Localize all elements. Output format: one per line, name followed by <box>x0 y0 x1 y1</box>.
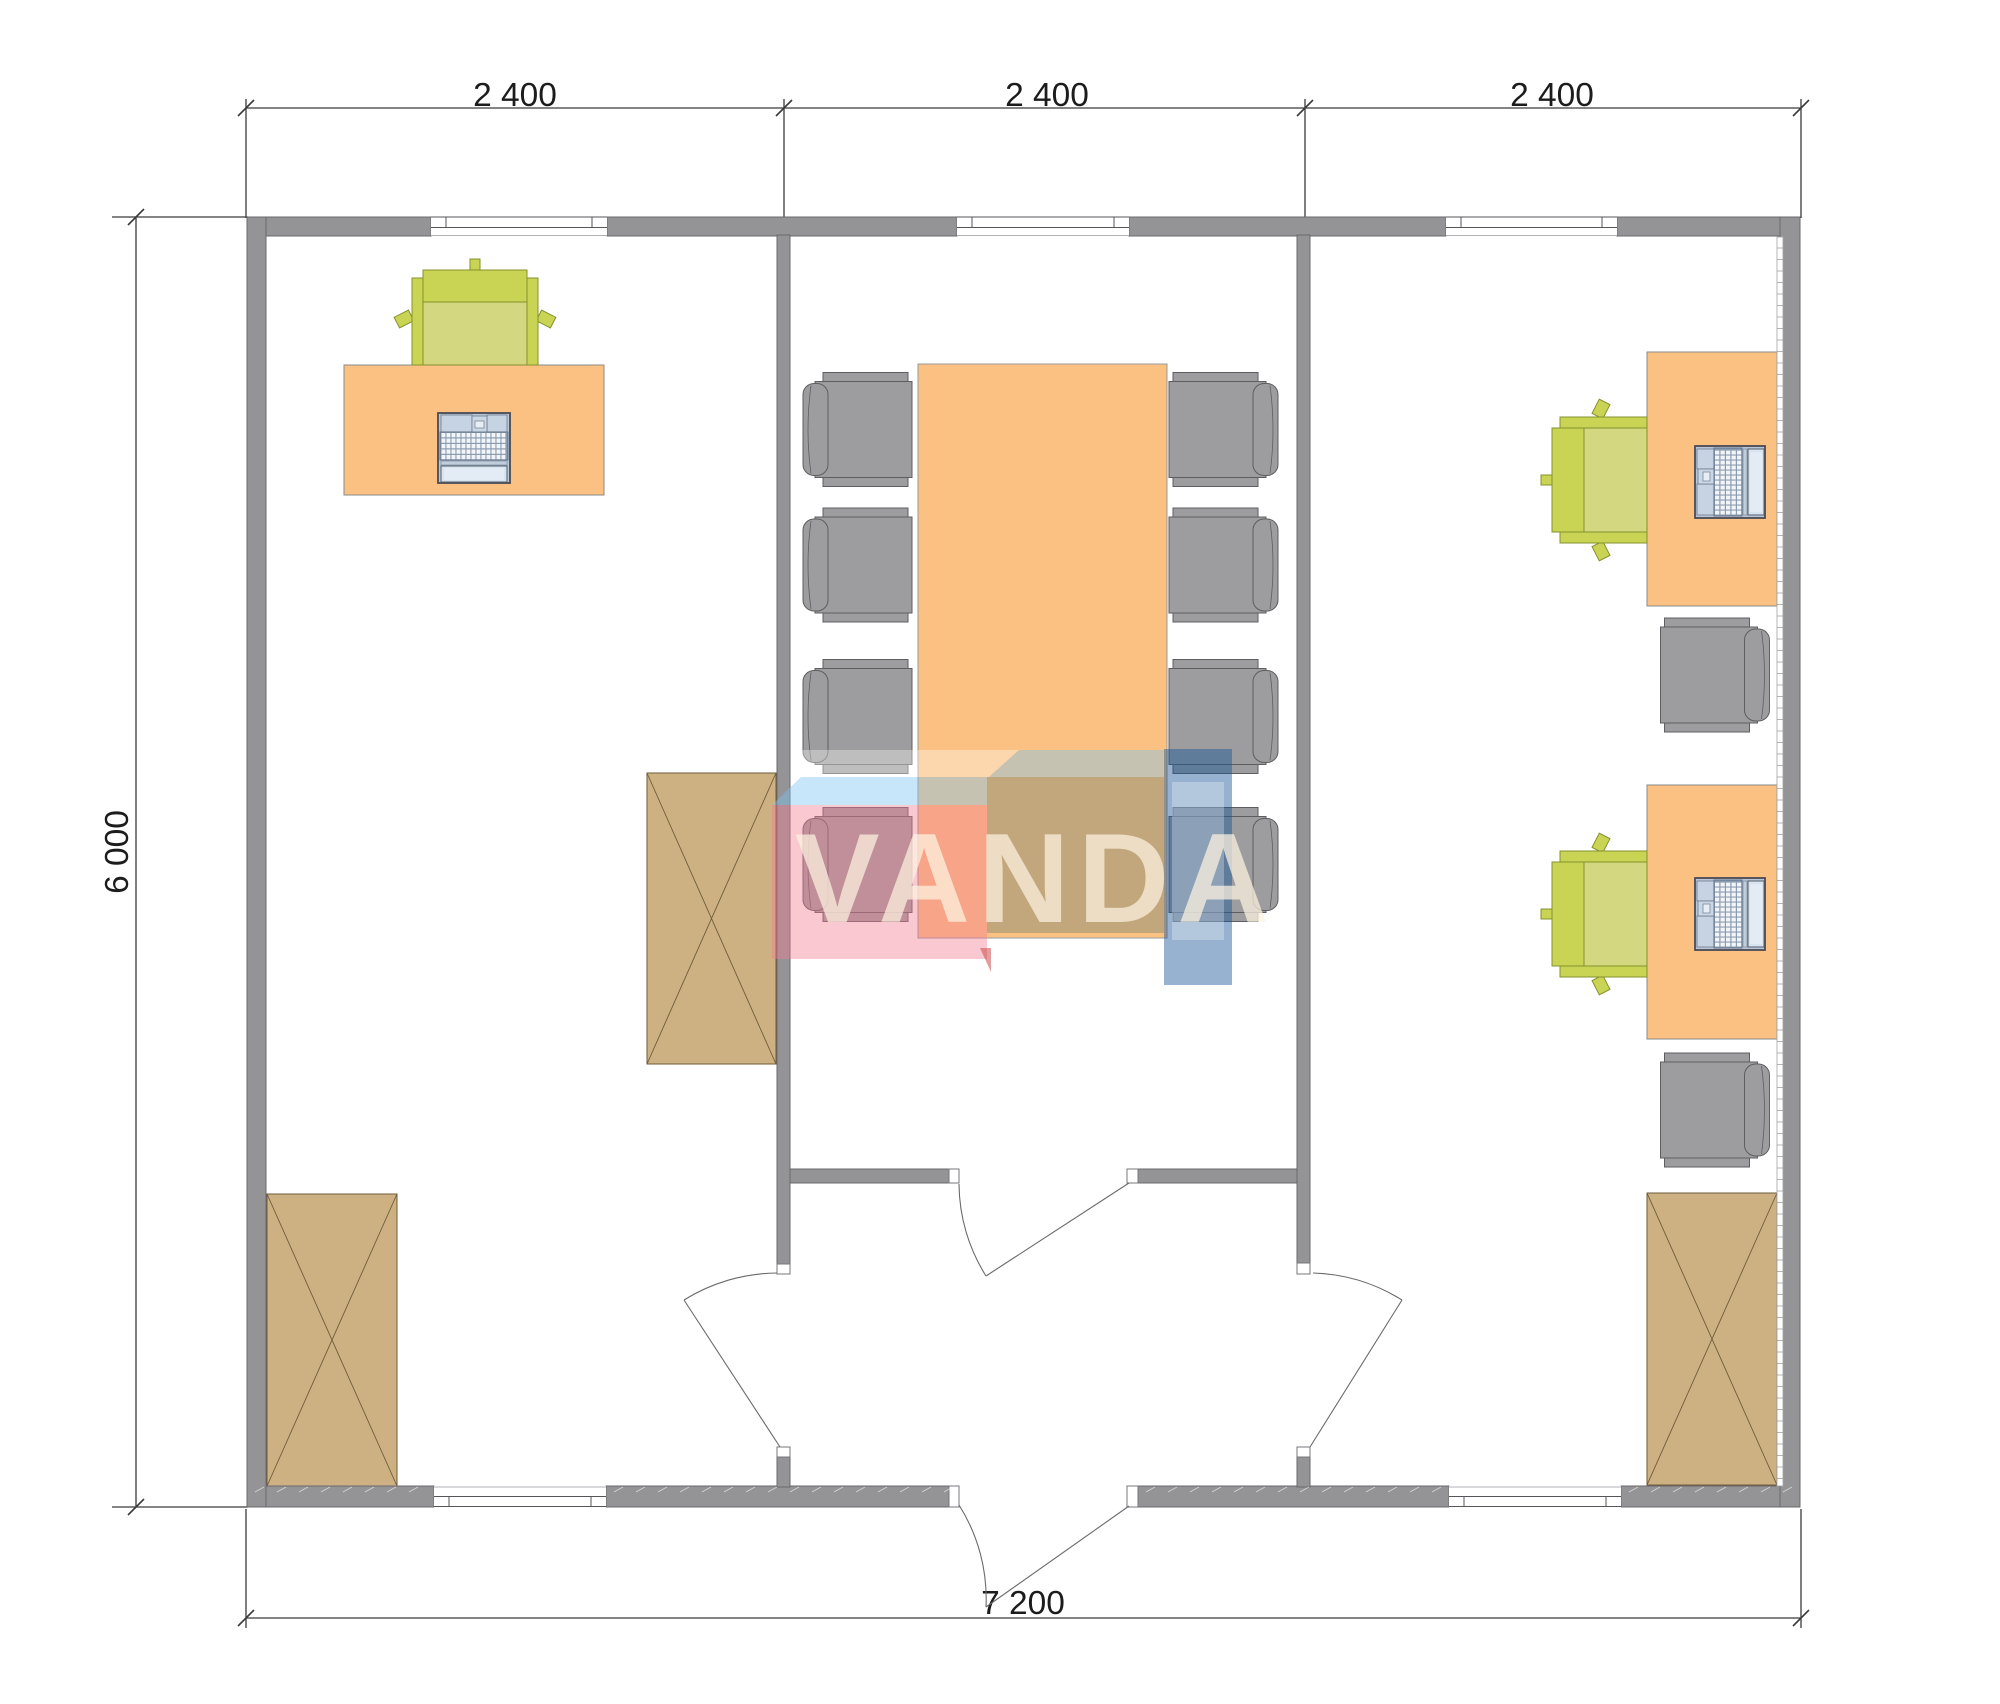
svg-text:7 200: 7 200 <box>981 1585 1065 1622</box>
svg-text:2 400: 2 400 <box>1005 77 1089 114</box>
svg-text:VANDA: VANDA <box>795 807 1277 949</box>
svg-text:2 400: 2 400 <box>473 77 557 114</box>
svg-text:6 000: 6 000 <box>99 810 136 894</box>
svg-text:2 400: 2 400 <box>1510 77 1594 114</box>
